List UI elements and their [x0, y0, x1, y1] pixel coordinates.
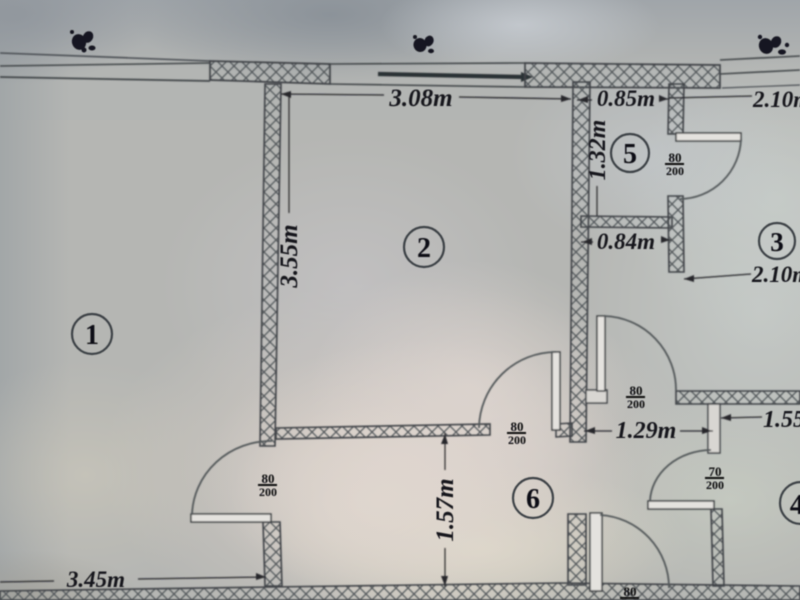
svg-text:200: 200	[666, 164, 684, 178]
svg-text:2: 2	[417, 233, 431, 264]
svg-text:200: 200	[706, 478, 724, 492]
svg-text:6: 6	[526, 484, 540, 515]
svg-text:3.45m: 3.45m	[66, 567, 125, 592]
svg-text:1.29m: 1.29m	[616, 418, 677, 444]
svg-text:80: 80	[511, 419, 524, 434]
svg-text:5: 5	[623, 139, 637, 170]
svg-text:200: 200	[508, 433, 526, 447]
svg-text:3.08m: 3.08m	[388, 85, 452, 112]
svg-text:80: 80	[624, 584, 637, 599]
svg-text:80: 80	[262, 471, 275, 486]
svg-text:3: 3	[770, 227, 784, 257]
svg-text:70: 70	[709, 464, 722, 479]
svg-text:4: 4	[790, 489, 800, 521]
svg-text:80: 80	[630, 383, 643, 398]
svg-text:0.84m: 0.84m	[597, 229, 655, 254]
svg-text:1.32m: 1.32m	[585, 120, 611, 181]
svg-text:1.57m: 1.57m	[432, 478, 459, 541]
svg-text:3.55m: 3.55m	[276, 224, 303, 288]
svg-text:2.10m: 2.10m	[751, 262, 800, 287]
svg-text:200: 200	[627, 397, 645, 411]
svg-text:1.55m: 1.55m	[763, 407, 800, 433]
svg-text:2.10m: 2.10m	[752, 87, 800, 112]
svg-text:200: 200	[259, 485, 277, 499]
svg-text:0.85m: 0.85m	[597, 86, 655, 111]
svg-text:1: 1	[85, 320, 99, 351]
svg-text:80: 80	[669, 150, 682, 165]
